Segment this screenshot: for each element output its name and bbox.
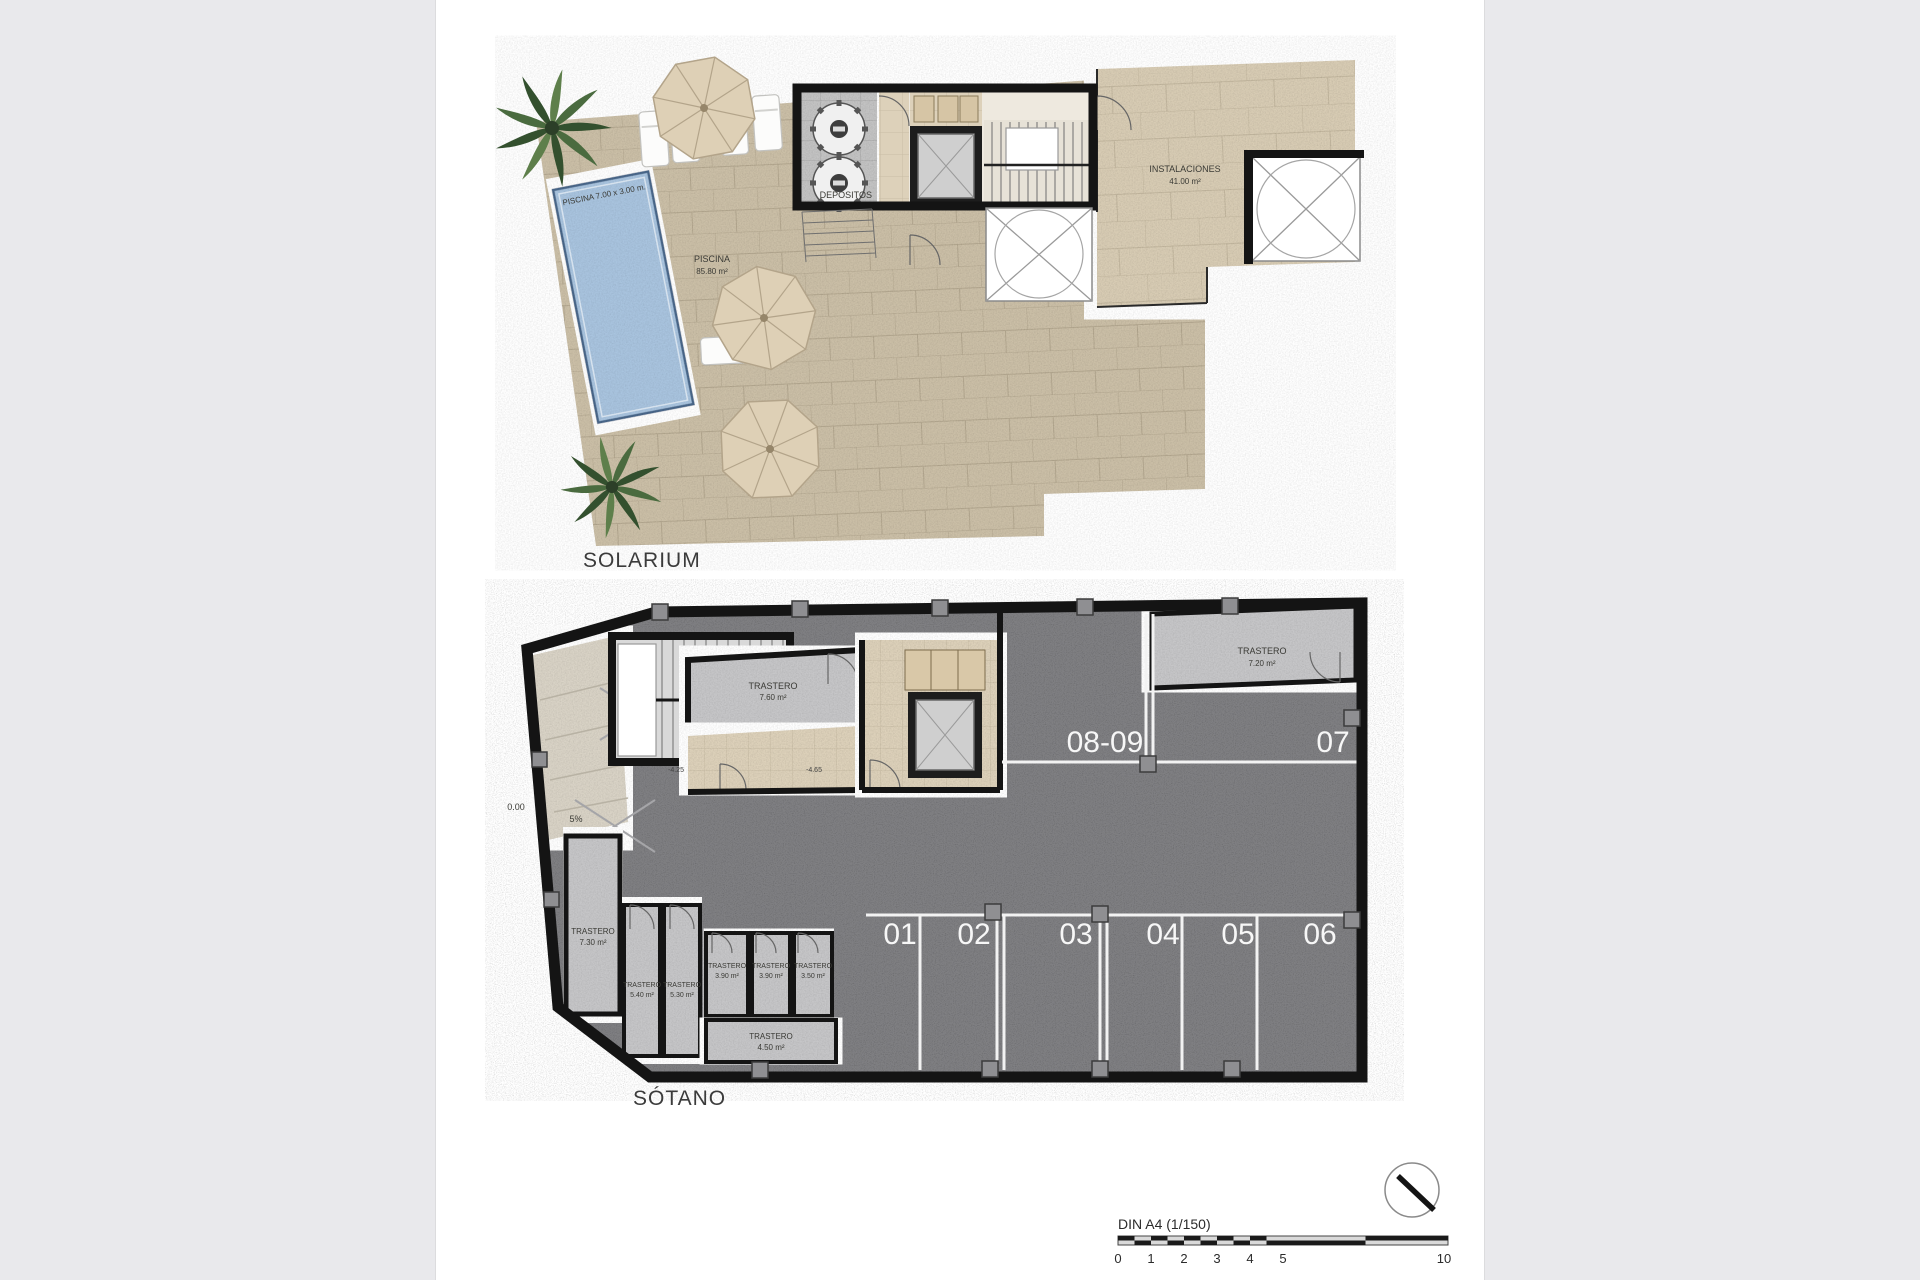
- lightwell-center: [986, 208, 1092, 301]
- solarium-plan: PISCINA 7.00 x 3.00 m. PISCINA: [486, 46, 1364, 572]
- floorplan-drawing: PISCINA 7.00 x 3.00 m. PISCINA: [0, 0, 1920, 1280]
- scale-tick: 10: [1437, 1251, 1451, 1266]
- storage-area: 7.60 m²: [759, 693, 786, 702]
- meter-cabinet: [960, 96, 978, 122]
- scale-tick: 3: [1213, 1251, 1220, 1266]
- storage-label: TRASTERO: [571, 927, 615, 936]
- scale-bar: DIN A4 (1/150) 0 1 2 3 4: [1114, 1216, 1451, 1266]
- parking-space-label: 07: [1316, 726, 1349, 759]
- sun-lounger: [752, 94, 783, 151]
- parking-space-label: 08-09: [1067, 726, 1144, 759]
- sotano-plan: 08-09 07 01 02 03 04 05 06: [507, 598, 1362, 1110]
- water-tank-icon: [810, 100, 868, 158]
- parking-space-label: 03: [1059, 918, 1092, 951]
- depositos-label: DEPOSITOS: [820, 190, 872, 200]
- storage-label: TRASTERO: [749, 1032, 793, 1041]
- storage-label: TRASTERO: [623, 982, 662, 989]
- terrace-room-label: PISCINA: [694, 254, 730, 264]
- level-annotation: -4.25: [668, 767, 684, 774]
- terrace-area-label: 85.80 m²: [696, 267, 728, 276]
- storage-area: 4.50 m²: [757, 1043, 784, 1052]
- level-annotation: 0.00: [507, 802, 525, 812]
- meter-cabinet: [905, 650, 985, 690]
- parking-space-label: 05: [1221, 918, 1254, 951]
- ramp-slope-annotation: 5%: [569, 814, 582, 824]
- scale-tick: 1: [1147, 1251, 1154, 1266]
- scale-tick: 4: [1246, 1251, 1253, 1266]
- storage-area: 7.20 m²: [1248, 659, 1275, 668]
- parking-space-label: 02: [957, 918, 990, 951]
- storage-area: 5.30 m²: [670, 992, 694, 999]
- scale-tick: 5: [1279, 1251, 1286, 1266]
- storage-label: TRASTERO: [752, 963, 791, 970]
- instalaciones-area-label: 41.00 m²: [1169, 177, 1201, 186]
- sotano-title: SÓTANO: [633, 1087, 726, 1110]
- plan-sheet-canvas: PISCINA 7.00 x 3.00 m. PISCINA: [0, 0, 1920, 1280]
- lightwell-topright: [1244, 150, 1364, 264]
- storage-area: 7.30 m²: [579, 938, 606, 947]
- instalaciones-label: INSTALACIONES: [1149, 164, 1220, 174]
- parking-space-label: 01: [883, 918, 916, 951]
- stairs-upper: [984, 120, 1093, 206]
- scale-tick: 2: [1180, 1251, 1187, 1266]
- stair-landing: [618, 644, 656, 756]
- meter-cabinet: [938, 96, 958, 122]
- storage-area: 3.50 m²: [801, 973, 825, 980]
- core-hallway: [879, 92, 909, 202]
- storage-label: TRASTERO: [748, 681, 797, 691]
- storage-label: TRASTERO: [1237, 646, 1286, 656]
- storage-label: TRASTERO: [794, 963, 833, 970]
- parking-space-label: 06: [1303, 918, 1336, 951]
- level-annotation: -4.65: [806, 767, 822, 774]
- scale-tick-labels: 0 1 2 3 4 5 10: [1114, 1251, 1451, 1266]
- storage-label: TRASTERO: [708, 963, 747, 970]
- storage-area: 3.90 m²: [715, 973, 739, 980]
- scale-label: DIN A4 (1/150): [1118, 1216, 1211, 1232]
- meter-cabinet: [914, 96, 934, 122]
- stair-landing: [1006, 128, 1058, 170]
- storage-area: 3.90 m²: [759, 973, 783, 980]
- storage-area: 5.40 m²: [630, 992, 654, 999]
- basement-corridor: [688, 726, 860, 792]
- north-arrow-icon: [1385, 1163, 1439, 1217]
- solarium-title: SOLARIUM: [583, 549, 701, 572]
- storage-label: TRASTERO: [663, 982, 702, 989]
- scale-tick: 0: [1114, 1251, 1121, 1266]
- parking-space-label: 04: [1146, 918, 1179, 951]
